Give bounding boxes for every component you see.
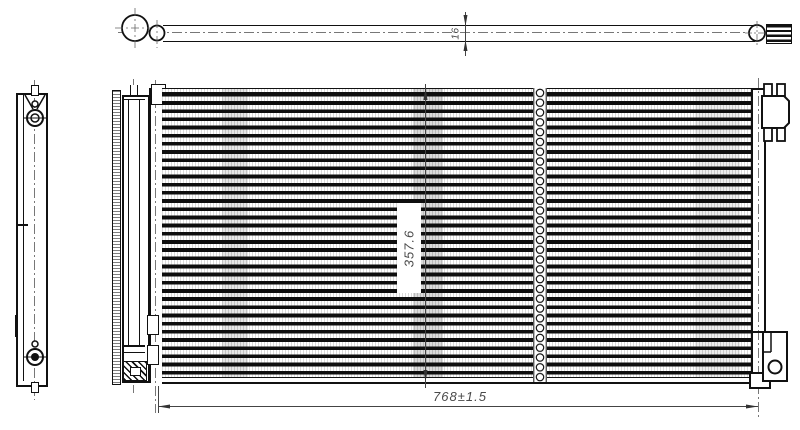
drawing-canvas: 16 [0, 0, 800, 430]
width-dimension-arrow-left [158, 401, 170, 412]
receiver-drier-divider-2 [123, 352, 145, 353]
receiver-drier-inner-right [139, 100, 140, 345]
receiver-drier-body [122, 95, 150, 383]
width-dimension-arrow-right [746, 401, 758, 412]
right-tube-end-line [751, 88, 753, 382]
left-header-clip-2 [147, 345, 159, 365]
core-top-plate [162, 88, 752, 93]
core-tubes [162, 93, 752, 378]
core-bottom-plate [162, 377, 752, 384]
width-dimension-label: 768±1.5 [415, 388, 505, 404]
bottom-right-bracket [758, 328, 794, 386]
width-dimension-line [158, 406, 758, 407]
receiver-drier-cap-line [123, 99, 145, 100]
top-right-bracket [760, 82, 794, 144]
core-baffle-column [533, 88, 547, 382]
receiver-drier-cap-window [130, 367, 141, 376]
left-header-line [149, 88, 151, 383]
receiver-drier-neck [130, 85, 138, 95]
left-header-clip-1 [147, 315, 159, 335]
front-view: 357.6 768±1.5 [0, 0, 800, 430]
height-dimension-label-box: 357.6 [397, 203, 421, 293]
left-side-plate [112, 90, 121, 385]
receiver-drier-inner-left [128, 100, 129, 345]
receiver-drier-divider-1 [123, 345, 145, 347]
height-dimension-arrow-top [420, 88, 431, 100]
height-dimension-text: 357.6 [402, 229, 417, 267]
width-dimension-text: 768±1.5 [433, 389, 487, 404]
height-dimension-line [425, 84, 426, 390]
height-dimension-arrow-bottom [420, 370, 431, 382]
